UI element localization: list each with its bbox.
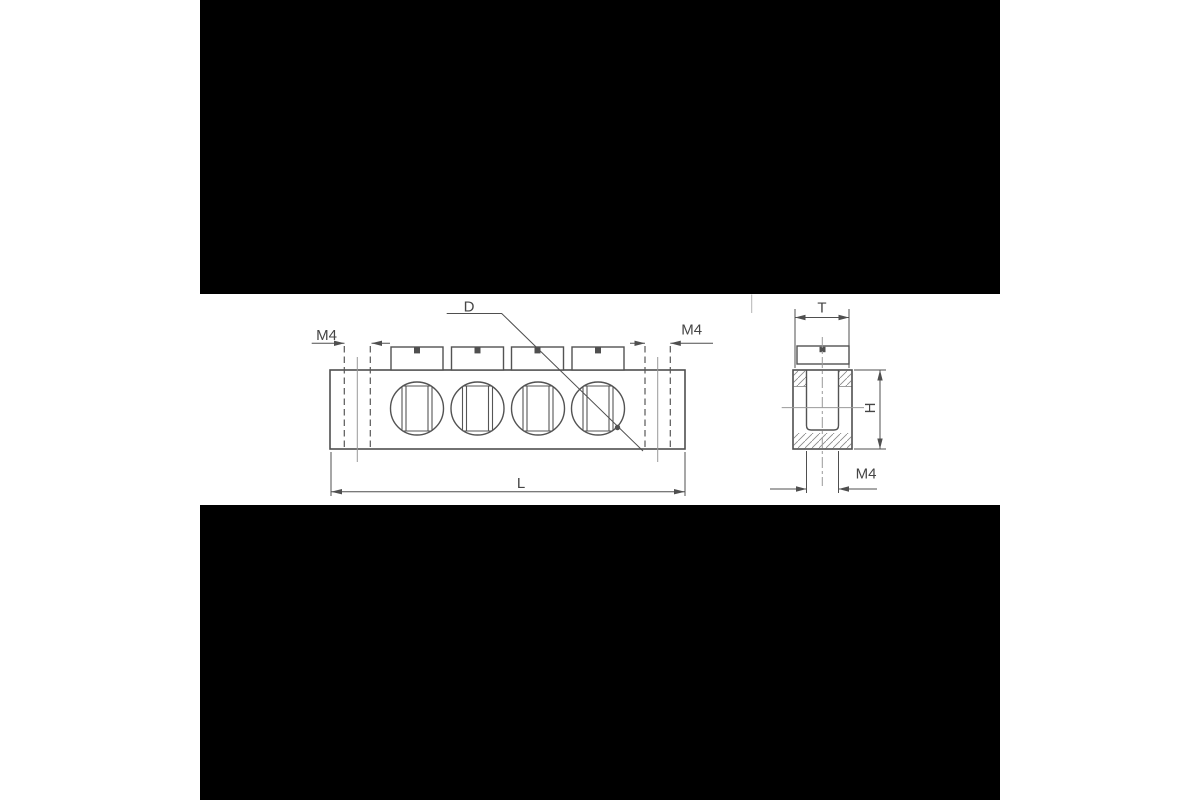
side-view: T H M4 <box>770 300 886 494</box>
dim-label-d: D <box>464 299 475 316</box>
technical-drawing: M4 M4 D <box>0 0 1200 800</box>
page: M4 M4 D <box>0 0 1200 800</box>
dim-front-m4-left: M4 <box>312 327 390 346</box>
terminal-tabs <box>391 347 624 370</box>
terminal-screws <box>391 382 625 435</box>
dim-front-hole-diameter: D <box>447 299 643 452</box>
dim-front-m4-right: M4 <box>630 322 713 347</box>
dim-label-h: H <box>862 403 879 414</box>
front-right-hole <box>645 346 670 462</box>
dim-label-l: L <box>517 475 525 492</box>
dim-side-height: H <box>854 370 886 449</box>
dim-front-length: L <box>331 452 685 496</box>
front-left-hole <box>344 346 370 462</box>
dim-side-m4: M4 <box>770 451 877 493</box>
dim-label-m4-side: M4 <box>856 466 877 483</box>
dim-label-m4-right: M4 <box>681 322 702 339</box>
front-body-outline <box>330 370 685 449</box>
dim-label-t: T <box>817 300 826 317</box>
front-view: M4 M4 D <box>312 299 713 497</box>
dim-label-m4-left: M4 <box>316 327 337 344</box>
side-screw-head <box>797 346 849 364</box>
